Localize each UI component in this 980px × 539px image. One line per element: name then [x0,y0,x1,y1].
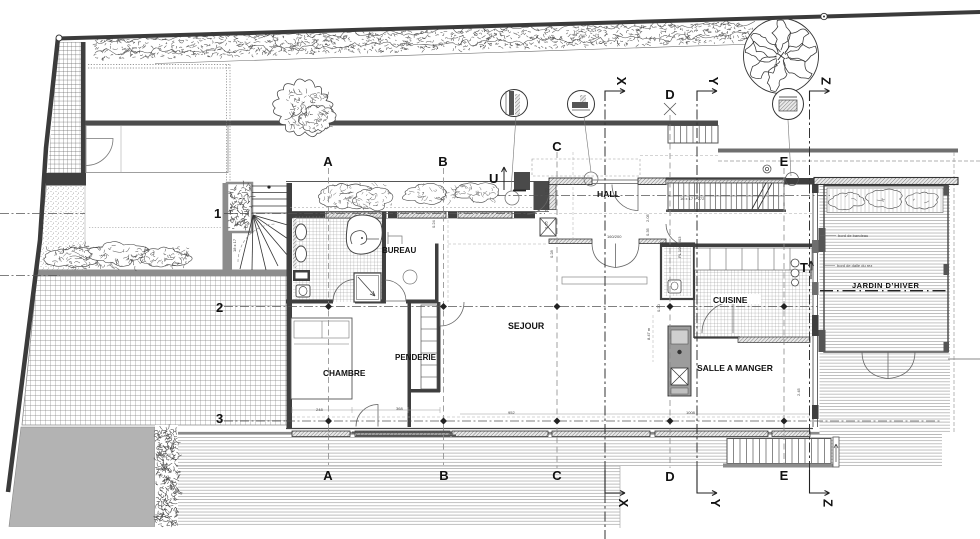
svg-text:1008: 1008 [686,410,696,415]
svg-text:SEJOUR: SEJOUR [508,321,545,331]
svg-text:Z: Z [819,77,834,85]
svg-text:0.35: 0.35 [645,227,650,236]
svg-text:CUISINE: CUISINE [713,295,748,305]
svg-text:D: D [665,87,674,102]
svg-text:X: X [614,77,629,86]
svg-text:U: U [489,171,498,186]
svg-text:2.45: 2.45 [796,387,801,396]
svg-text:Y: Y [706,77,721,86]
svg-text:T: T [800,260,808,275]
svg-text:18 x 17: 18 x 17 [232,238,237,252]
svg-text:C: C [552,468,562,483]
svg-text:0.24: 0.24 [431,219,436,228]
svg-text:0.35: 0.35 [544,220,549,229]
svg-text:CHAMBRE: CHAMBRE [323,368,366,378]
svg-text:SALLE A MANGER: SALLE A MANGER [697,363,773,373]
svg-text:bord de bandeau: bord de bandeau [838,233,868,238]
svg-text:0.28: 0.28 [549,249,554,258]
svg-text:0.20: 0.20 [656,303,661,312]
svg-text:D: D [665,469,674,484]
svg-text:B: B [439,468,448,483]
svg-text:368: 368 [396,406,403,411]
svg-text:2.05: 2.05 [645,213,650,222]
svg-text:2.02: 2.02 [544,203,549,212]
svg-text:952: 952 [508,410,515,415]
svg-text:X: X [616,499,631,508]
svg-text:248: 248 [316,407,323,412]
svg-text:1: 1 [214,206,221,221]
svg-text:C: C [552,139,562,154]
svg-text:E: E [780,468,789,483]
svg-text:A: A [323,468,333,483]
svg-text:2: 2 [216,300,223,315]
svg-text:E: E [780,154,789,169]
svg-text:A: A [323,154,333,169]
svg-text:bord de dalle du rez: bord de dalle du rez [837,263,872,268]
svg-text:0.70: 0.70 [544,187,549,196]
svg-text:Z: Z [821,499,836,507]
svg-text:HALL: HALL [597,189,620,199]
svg-text:Y: Y [708,499,723,508]
svg-text:3: 3 [216,411,223,426]
svg-text:JARDIN D’HIVER: JARDIN D’HIVER [852,281,920,290]
svg-text:BUREAU: BUREAU [382,246,416,255]
svg-text:160/200: 160/200 [607,234,622,239]
svg-text:8.47 m: 8.47 m [646,327,651,340]
svg-text:16 x 17 = 272: 16 x 17 = 272 [680,196,705,201]
svg-text:B: B [438,154,447,169]
svg-text:PENDERIE: PENDERIE [395,353,437,362]
